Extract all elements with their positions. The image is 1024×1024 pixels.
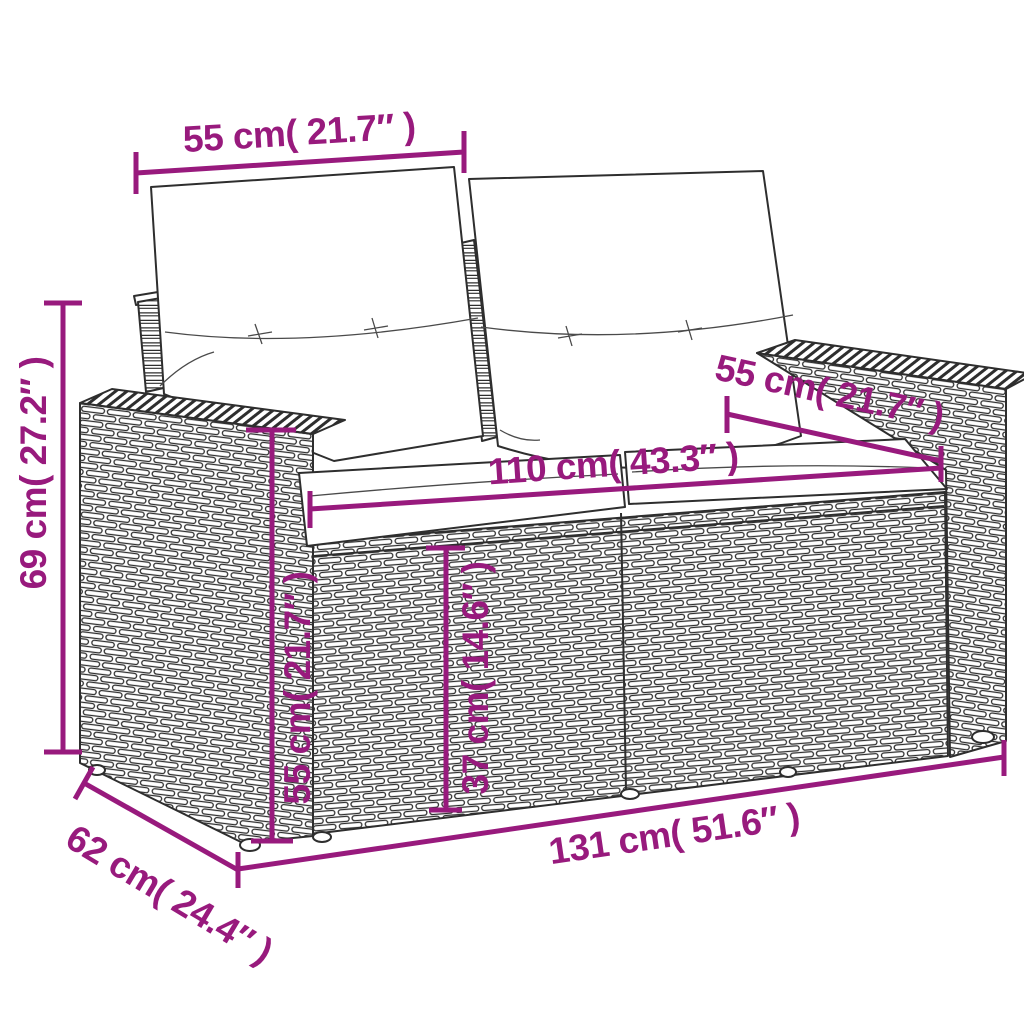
dimension-diagram: 55 cm( 21.7″ ) 69 cm( 27.2″ ) 55 cm( 21.… — [0, 0, 1024, 1024]
seat-base — [313, 492, 948, 834]
back-cushion-right — [469, 171, 801, 468]
sofa-dimension-drawing: 55 cm( 21.7″ ) 69 cm( 27.2″ ) 55 cm( 21.… — [0, 0, 1024, 1024]
dimension-total-height: 69 cm( 27.2″ ) — [13, 303, 82, 752]
dimension-label-seat-height: 37 cm( 14.6″ ) — [455, 562, 496, 795]
dimension-label-total-height: 69 cm( 27.2″ ) — [13, 357, 54, 590]
sofa-illustration — [80, 167, 1024, 851]
dimension-label-backrest-width: 55 cm( 21.7″ ) — [182, 105, 417, 160]
dimension-label-armrest-height: 55 cm( 21.7″ ) — [277, 572, 318, 805]
